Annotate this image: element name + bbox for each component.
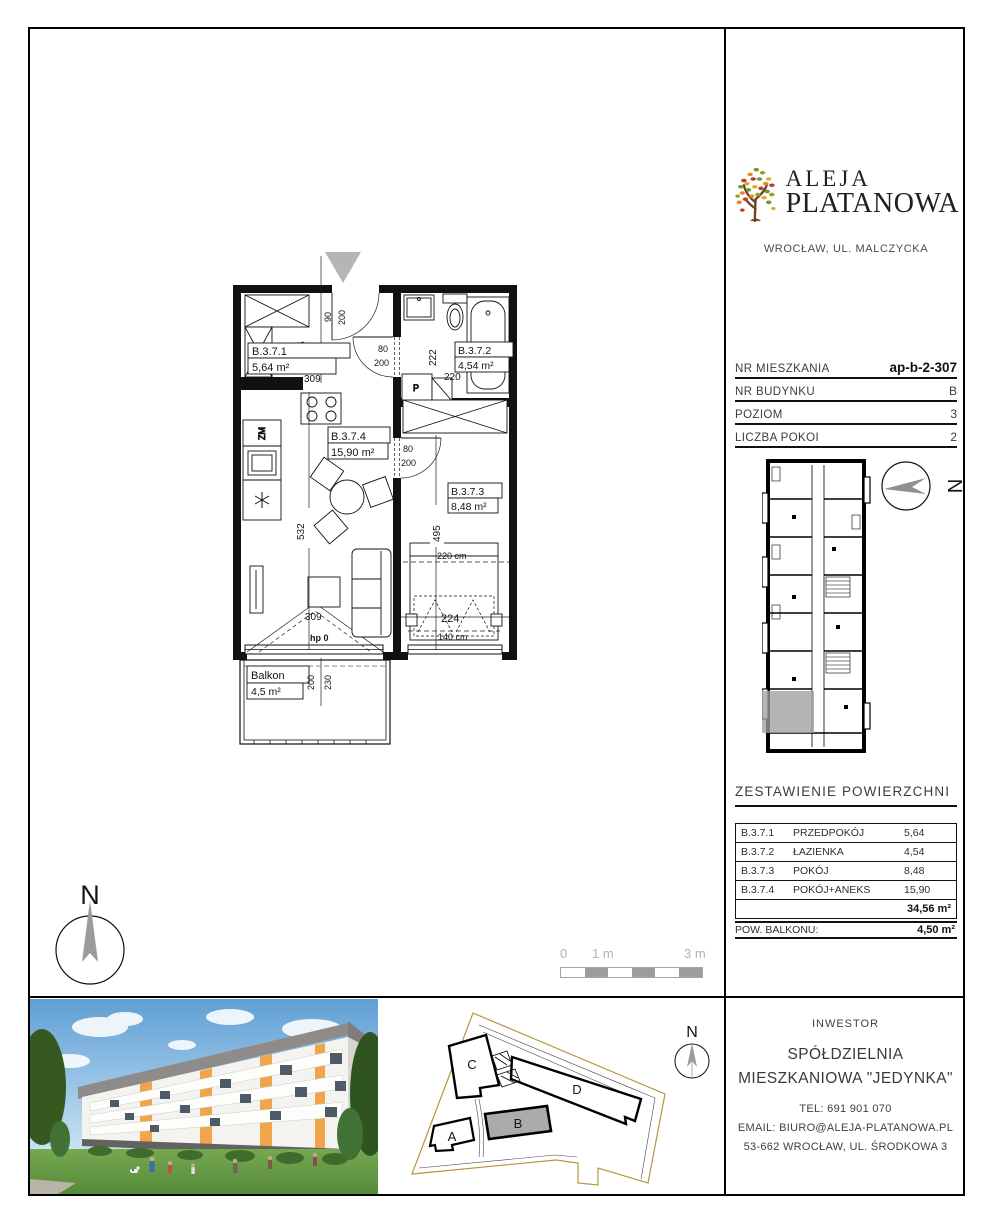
sofa xyxy=(352,549,391,637)
info-label: NR MIESZKANIA xyxy=(735,363,830,375)
dim-beddoor-200: 200 xyxy=(401,458,416,468)
dim-balcony-200: 200 xyxy=(306,675,316,690)
building-c-label: C xyxy=(467,1057,476,1072)
site-compass: N xyxy=(675,1024,709,1078)
dim-living-309: 309 xyxy=(305,612,322,623)
area-row: B.3.7.1 PRZEDPOKÓJ 5,64 xyxy=(736,824,956,843)
kitchen-stove xyxy=(301,393,341,424)
overview-compass: N xyxy=(874,452,969,516)
bedroom-wardrobe xyxy=(403,400,507,433)
room-1-area: 5,64 m² xyxy=(252,362,290,374)
entrance-arrow-icon xyxy=(325,252,361,283)
investor-block: INWESTOR SPÓŁDZIELNIA MIESZKANIOWA "JEDY… xyxy=(726,1008,965,1157)
dishwasher-label: ZM xyxy=(257,427,267,440)
room-3-code: B.3.7.3 xyxy=(451,486,484,498)
info-label: NR BUDYNKU xyxy=(735,386,815,398)
area-row: B.3.7.4 POKÓJ+ANEKS 15,90 xyxy=(736,881,956,900)
room-4-code: B.3.7.4 xyxy=(331,431,366,443)
info-row-apartment-number: NR MIESZKANIA ap-b-2-307 xyxy=(735,356,957,379)
area-name: POKÓJ+ANEKS xyxy=(793,884,904,896)
room-1-code: B.3.7.1 xyxy=(252,346,287,358)
balcony-area-label: POW. BALKONU: xyxy=(735,924,818,936)
dim-bathdoor-80: 80 xyxy=(378,344,388,354)
dim-balcony-230: 230 xyxy=(323,675,333,690)
balcony-area: 4,5 m² xyxy=(251,686,281,698)
logo-name-line1: ALEJA xyxy=(786,167,959,190)
area-row: B.3.7.2 ŁAZIENKA 4,54 xyxy=(736,843,956,862)
area-summary-heading: ZESTAWIENIE POWIERZCHNI xyxy=(735,784,957,807)
scale-tick-0: 0 xyxy=(560,946,567,961)
kitchen-counter: ZM xyxy=(243,420,281,520)
dim-bath-222: 222 xyxy=(428,349,439,366)
dim-bed-495: 495 xyxy=(432,525,443,542)
dim-beddoor-80: 80 xyxy=(403,444,413,454)
dim-hall-309: 309 xyxy=(304,374,321,385)
dim-bed-224: 224 xyxy=(441,613,459,625)
area-name: PRZEDPOKÓJ xyxy=(793,827,904,839)
building-a-label: A xyxy=(448,1129,457,1144)
area-value: 5,64 xyxy=(904,827,956,839)
room-2-area: 4,54 m² xyxy=(458,360,494,372)
dim-bed-220cm: 220 cm xyxy=(437,551,467,561)
area-name: ŁAZIENKA xyxy=(793,846,904,858)
bathroom-sink xyxy=(404,295,434,320)
info-value: 3 xyxy=(950,407,957,421)
overview-north-letter: N xyxy=(943,479,965,493)
investor-name-line1: SPÓŁDZIELNIA xyxy=(726,1043,965,1067)
info-value: B xyxy=(949,384,957,398)
room-3-area: 8,48 m² xyxy=(451,501,487,513)
building-photo xyxy=(30,999,378,1194)
logo-location: WROCŁAW, UL. MALCZYCKA xyxy=(733,243,959,255)
area-total: 34,56 m² xyxy=(736,900,956,918)
tv-board xyxy=(250,566,263,613)
investor-address: 53-662 WROCŁAW, UL. ŚRODKOWA 3 xyxy=(726,1138,965,1157)
dim-bath-220: 220 xyxy=(444,372,461,383)
balcony-label: Balkon xyxy=(251,670,285,682)
investor-email: EMAIL: BIURO@ALEJA-PLATANOWA.PL xyxy=(726,1119,965,1138)
balcony: Balkon 4,5 m² 200 230 xyxy=(240,658,390,744)
bedroom-door: 80 200 xyxy=(395,438,442,478)
dim-bed-140cm: 140 cm xyxy=(438,632,468,642)
area-value: 15,90 xyxy=(904,884,956,896)
dining-set xyxy=(310,457,393,544)
scale-bar-segments xyxy=(560,967,703,978)
north-compass: N xyxy=(42,878,137,996)
coffee-table xyxy=(308,577,340,607)
toilet xyxy=(443,294,467,330)
balcony-area-row: POW. BALKONU: 4,50 m² xyxy=(735,921,957,939)
logo-name-line2: PLATANOWA xyxy=(786,190,959,219)
info-row-room-count: LICZBA POKOI 2 xyxy=(735,425,957,448)
bathroom-door: 80 200 xyxy=(353,337,400,377)
dim-living-532: 532 xyxy=(296,523,307,540)
logo-tree-icon xyxy=(733,152,780,234)
building-overview-plan xyxy=(762,455,872,757)
building-d-label: D xyxy=(572,1082,581,1097)
horizontal-divider xyxy=(28,996,965,998)
info-row-level: POZIOM 3 xyxy=(735,402,957,425)
brand-logo: ALEJA PLATANOWA xyxy=(733,152,959,234)
site-north-letter: N xyxy=(686,1024,698,1041)
site-plan: A B C D N xyxy=(379,999,724,1195)
investor-phone: TEL: 691 901 070 xyxy=(726,1100,965,1119)
area-value: 4,54 xyxy=(904,846,956,858)
dim-bathdoor-200: 200 xyxy=(374,358,389,368)
building-b-label: B xyxy=(514,1116,523,1131)
apartment-floor-plan: Balkon 4,5 m² 200 230 90 200 80 200 xyxy=(225,245,525,755)
investor-name-line2: MIESZKANIOWA "JEDYNKA" xyxy=(726,1067,965,1091)
bedroom-window xyxy=(408,645,502,660)
offer-page: Balkon 4,5 m² 200 230 90 200 80 200 xyxy=(0,0,992,1222)
info-row-building-number: NR BUDYNKU B xyxy=(735,379,957,402)
info-value: ap-b-2-307 xyxy=(889,360,957,375)
dim-entry-200: 200 xyxy=(337,310,347,325)
area-code: B.3.7.1 xyxy=(736,827,793,839)
investor-heading: INWESTOR xyxy=(726,1018,965,1030)
area-row: B.3.7.3 POKÓJ 8,48 xyxy=(736,862,956,881)
washer-label: P xyxy=(413,383,419,393)
area-code: B.3.7.3 xyxy=(736,865,793,877)
overview-north-arrow-icon xyxy=(884,478,926,494)
info-label: POZIOM xyxy=(735,409,783,421)
room-4-area: 15,90 m² xyxy=(331,447,375,459)
unit-info: NR MIESZKANIA ap-b-2-307 NR BUDYNKU B PO… xyxy=(735,356,957,448)
area-code: B.3.7.4 xyxy=(736,884,793,896)
scale-tick-1m: 1 m xyxy=(592,946,614,961)
area-value: 8,48 xyxy=(904,865,956,877)
room-2-code: B.3.7.2 xyxy=(458,345,491,357)
dim-sill-hp0: hp 0 xyxy=(310,633,329,643)
dim-entry-90: 90 xyxy=(323,312,333,322)
info-value: 2 xyxy=(950,430,957,444)
scale-bar: 0 1 m 3 m xyxy=(556,946,718,986)
info-label: LICZBA POKOI xyxy=(735,432,819,444)
area-code: B.3.7.2 xyxy=(736,846,793,858)
area-table: B.3.7.1 PRZEDPOKÓJ 5,64 B.3.7.2 ŁAZIENKA… xyxy=(735,823,957,919)
highlighted-unit xyxy=(762,691,814,733)
area-name: POKÓJ xyxy=(793,865,904,877)
balcony-area-value: 4,50 m² xyxy=(917,924,957,936)
scale-tick-3m: 3 m xyxy=(684,946,706,961)
